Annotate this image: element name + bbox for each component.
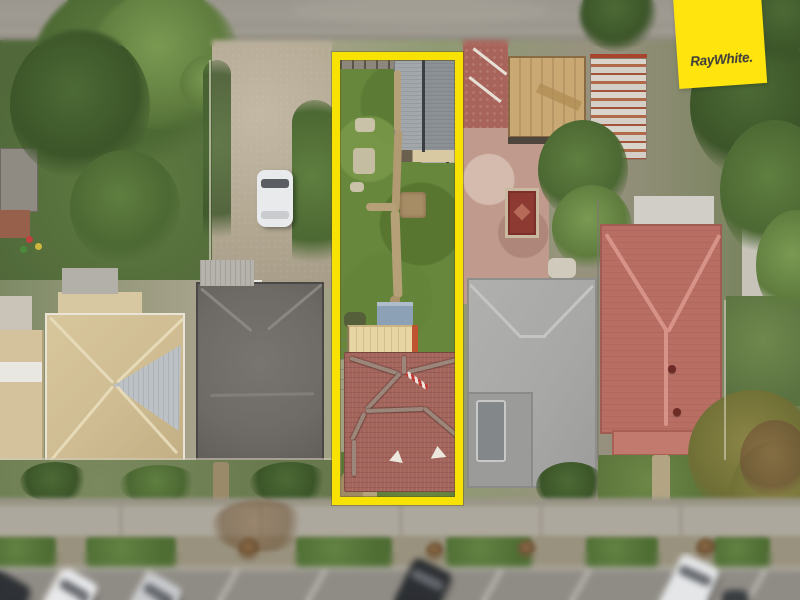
chimney-pot-1 xyxy=(668,365,676,373)
raywhite-logo-text: RayWhite. xyxy=(677,49,766,70)
toy-red xyxy=(26,236,33,243)
toy-green xyxy=(20,246,27,253)
raywhite-logo: RayWhite. xyxy=(673,0,767,89)
footpath-joint xyxy=(680,506,682,536)
path-bits-white xyxy=(548,258,576,278)
tree-lower-left xyxy=(70,150,180,265)
brick-roof-fragment xyxy=(463,40,508,128)
front-fence-line xyxy=(0,458,332,460)
toy-yellow xyxy=(35,243,42,250)
street-tree-bare xyxy=(212,500,308,552)
grey-ridge-3 xyxy=(520,335,546,338)
left-edge-house-whiteband xyxy=(0,362,42,382)
dark-grey-gable-above xyxy=(200,260,254,286)
tan-house-rear-grey xyxy=(62,268,118,294)
aerial-photo: RayWhite. xyxy=(0,0,800,600)
fence-right-lot xyxy=(597,200,599,460)
hedge-1 xyxy=(20,462,90,502)
weeds-left-column xyxy=(203,60,231,270)
fence-far-right xyxy=(724,300,726,460)
footpath-joint xyxy=(120,506,122,536)
subject-property-boundary xyxy=(332,52,463,505)
chimney-pot-2 xyxy=(673,408,681,416)
far-left-roof xyxy=(0,296,32,332)
parked-car-white-lot xyxy=(257,170,293,227)
left-edge-house-roof xyxy=(0,330,44,462)
blur-band-bottom xyxy=(0,552,800,600)
red-garden-rug xyxy=(505,188,539,238)
footpath-joint xyxy=(540,506,542,536)
grey-house-skylight xyxy=(476,400,506,462)
salmon-ridge-3 xyxy=(664,330,668,426)
footpath-joint xyxy=(400,506,402,536)
left-rusty-shed xyxy=(0,210,30,238)
dark-grey-house-roof xyxy=(196,282,324,462)
